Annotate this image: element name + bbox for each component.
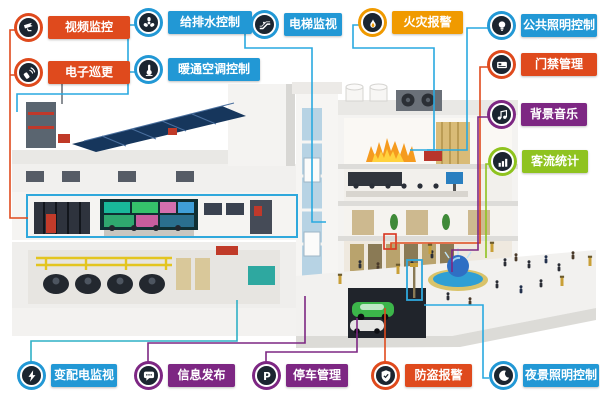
rooftop-water-tank [26, 78, 63, 148]
label-elevator-monitoring: 电梯监视 [284, 13, 342, 36]
system-info-release: 信息发布 [134, 364, 235, 387]
escalator-icon [253, 13, 276, 36]
lightbulb-icon [490, 14, 513, 37]
patrol-scanner-icon [17, 61, 40, 84]
control-room-floor [12, 192, 296, 240]
parking-p-icon: P [255, 364, 278, 387]
building-systems-diagram: 视频监控 电子巡更 给排水控制 暖通空调控制 电梯监视 火灾报警 [0, 0, 600, 400]
label-background-music: 背景音乐 [521, 103, 587, 126]
system-burglar-alarm: 防盗报警 [371, 364, 472, 387]
system-access-control: 门禁管理 [487, 53, 597, 76]
thermostat-icon [137, 58, 160, 81]
cctv-camera-icon [17, 16, 40, 39]
music-note-icon [490, 103, 513, 126]
system-electronic-patrol: 电子巡更 [14, 61, 130, 84]
label-access-control: 门禁管理 [521, 53, 597, 76]
system-passenger-flow: 客流统计 [488, 150, 588, 173]
label-fire-alarm: 火灾报警 [392, 11, 463, 34]
bar-chart-icon [491, 150, 514, 173]
lightning-icon [20, 364, 43, 387]
solar-panel-array [58, 103, 246, 152]
label-power-monitoring: 变配电监视 [51, 364, 117, 387]
label-parking: 停车管理 [286, 364, 348, 387]
label-water-supply: 给排水控制 [168, 11, 252, 34]
label-info-release: 信息发布 [168, 364, 235, 387]
label-burglar-alarm: 防盗报警 [405, 364, 472, 387]
elevator-car [304, 232, 320, 256]
svg-text:P: P [263, 370, 271, 382]
system-hvac-control: 暖通空调控制 [134, 58, 260, 81]
label-night-lighting: 夜景照明控制 [523, 364, 599, 387]
system-public-lighting: 公共照明控制 [487, 14, 597, 37]
label-video-surveillance: 视频监控 [48, 16, 130, 39]
flame-icon [361, 11, 384, 34]
basement-plant-room [12, 242, 296, 308]
crescent-moon-icon [492, 364, 515, 387]
system-parking: P 停车管理 [252, 364, 348, 387]
fan-impeller-icon [137, 11, 160, 34]
system-fire-alarm: 火灾报警 [358, 11, 463, 34]
left-building [12, 78, 296, 336]
system-power-monitoring: 变配电监视 [17, 364, 117, 387]
system-background-music: 背景音乐 [487, 103, 587, 126]
speech-bubble-icon [137, 364, 160, 387]
system-water-supply-drainage: 给排水控制 [134, 11, 252, 34]
label-public-lighting: 公共照明控制 [521, 14, 597, 37]
system-night-lighting: 夜景照明控制 [489, 364, 599, 387]
access-card-icon [490, 53, 513, 76]
system-video-surveillance: 视频监控 [14, 16, 130, 39]
label-electronic-patrol: 电子巡更 [48, 61, 130, 84]
shield-icon [374, 364, 397, 387]
label-passenger-flow: 客流统计 [522, 150, 588, 173]
system-elevator-monitoring: 电梯监视 [250, 13, 342, 36]
label-hvac-control: 暖通空调控制 [168, 58, 260, 81]
